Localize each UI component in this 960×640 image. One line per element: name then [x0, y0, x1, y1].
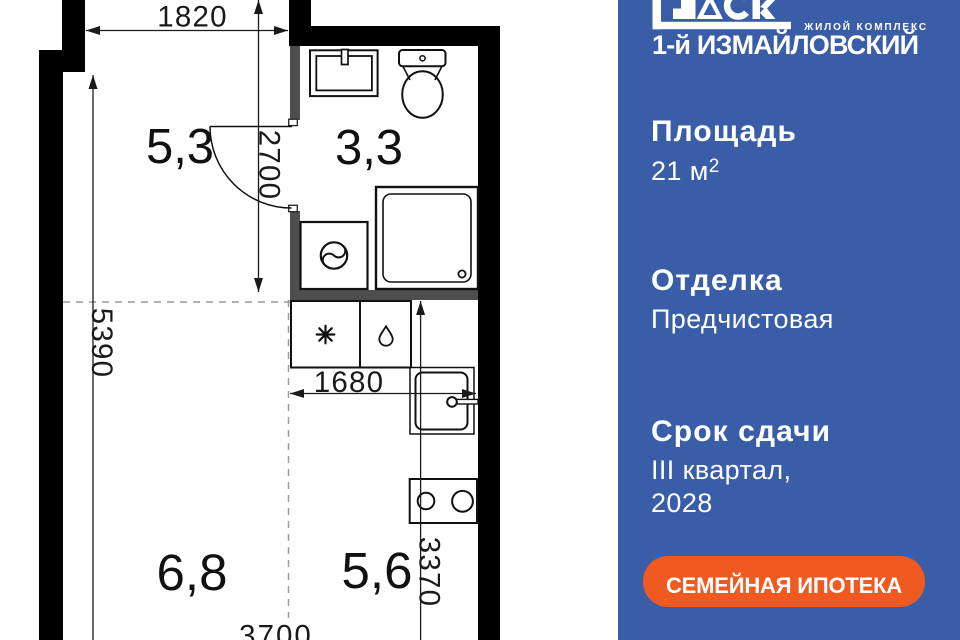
svg-text:6,8: 6,8: [157, 544, 228, 601]
svg-text:5,3: 5,3: [146, 120, 214, 174]
svg-text:5,6: 5,6: [342, 542, 413, 599]
svg-text:1680: 1680: [314, 366, 384, 399]
svg-text:3,3: 3,3: [335, 121, 403, 175]
svg-text:3700: 3700: [239, 620, 313, 640]
svg-text:2700: 2700: [253, 130, 286, 200]
svg-text:3370: 3370: [413, 537, 446, 607]
svg-text:1820: 1820: [157, 1, 227, 34]
svg-text:5390: 5390: [85, 308, 118, 378]
